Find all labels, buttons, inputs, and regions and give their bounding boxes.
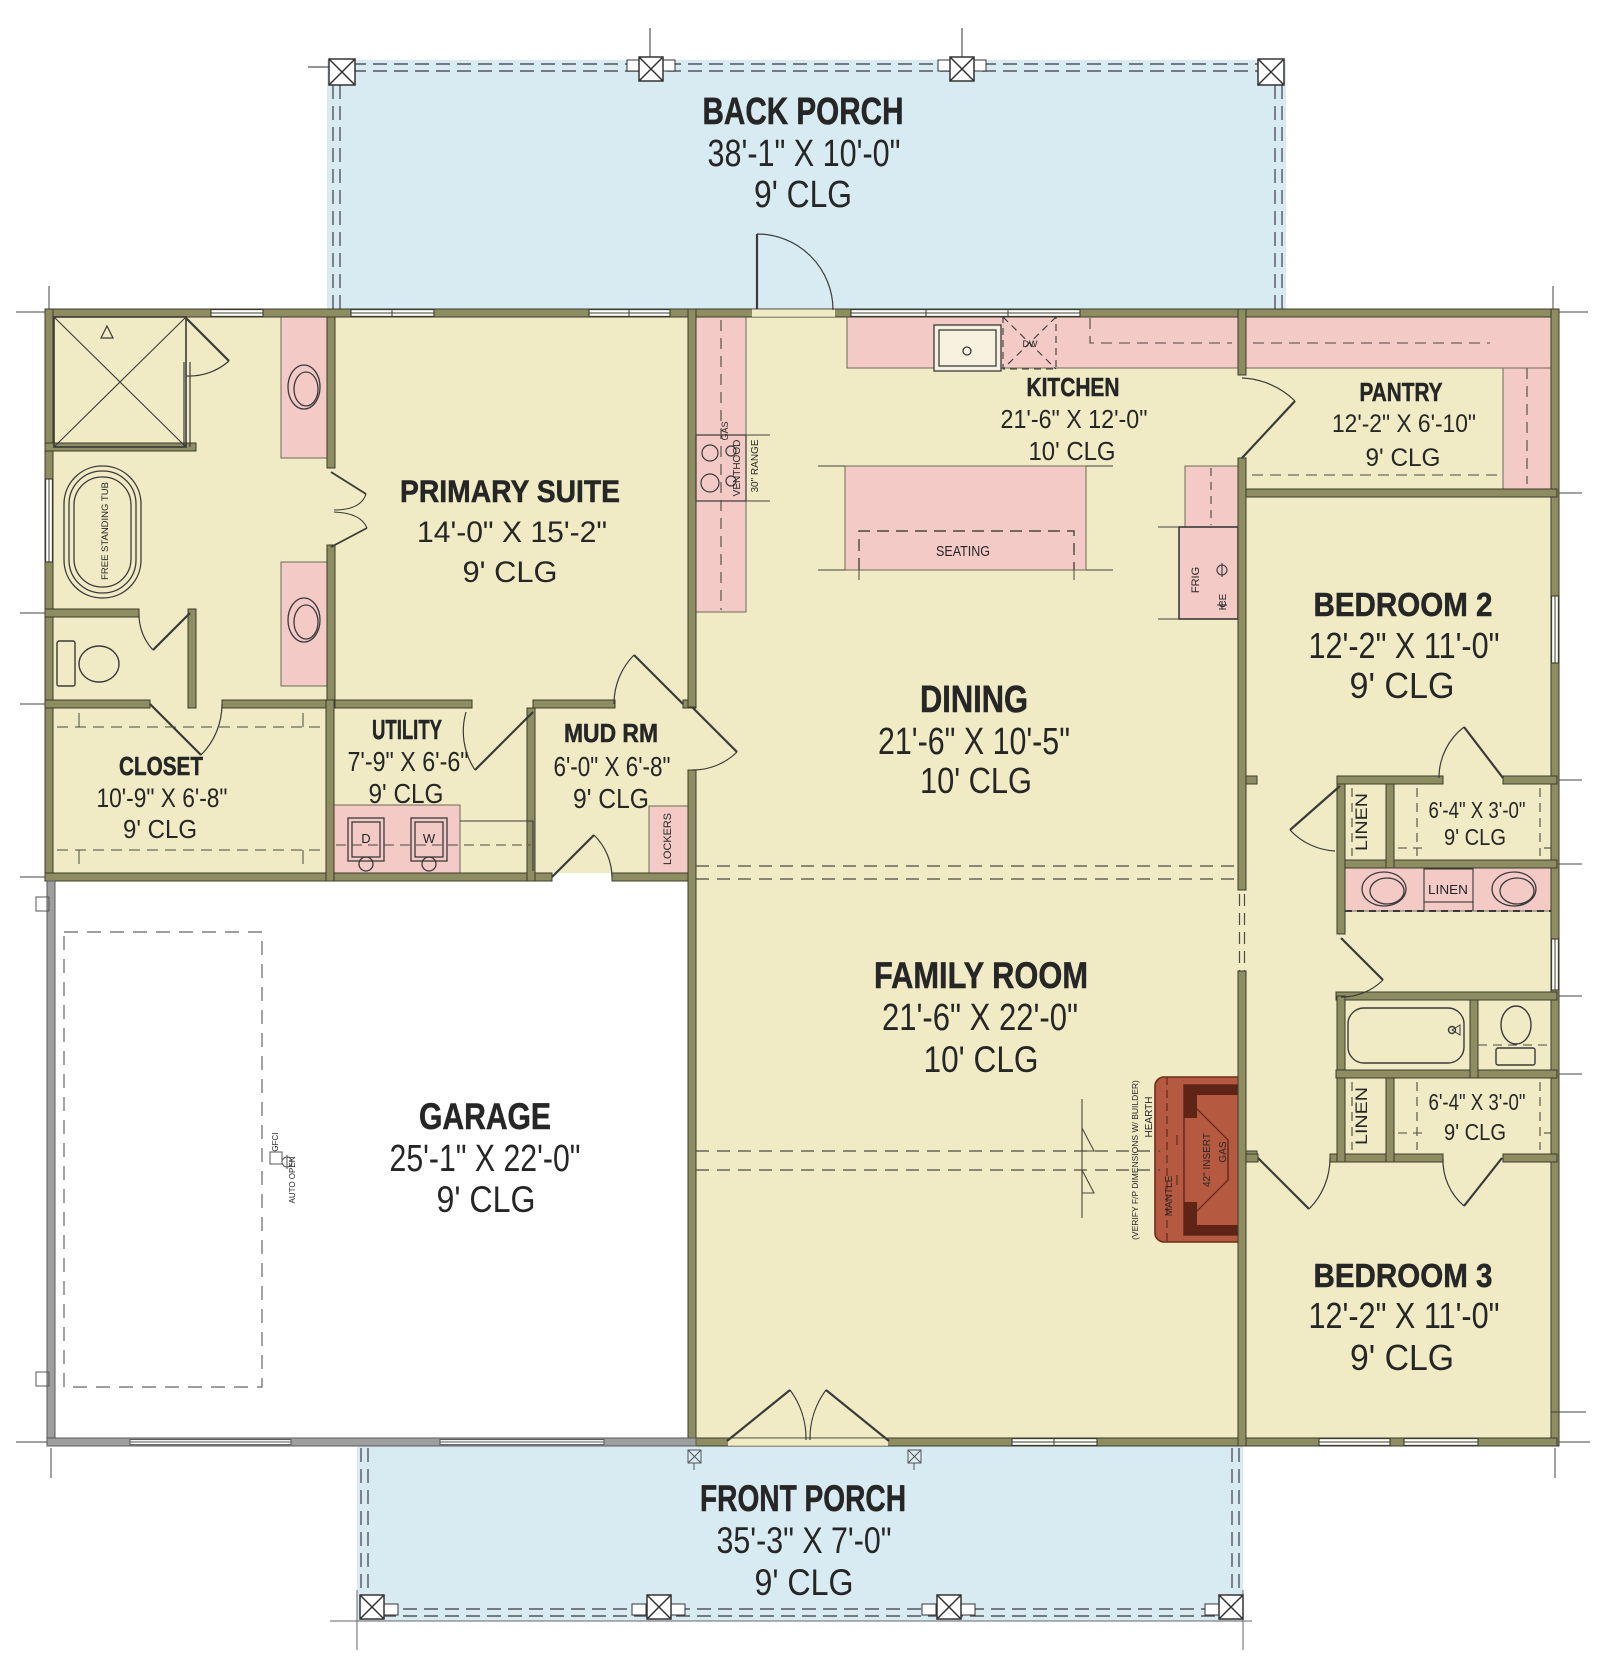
svg-text:MANTLE: MANTLE [1164, 1175, 1175, 1216]
svg-text:LOCKERS: LOCKERS [662, 813, 674, 865]
svg-text:9' CLG: 9' CLG [463, 556, 558, 589]
svg-text:10' CLG: 10' CLG [920, 760, 1032, 801]
svg-text:MUD RM: MUD RM [564, 718, 658, 748]
svg-text:FREE STANDING TUB: FREE STANDING TUB [100, 482, 111, 580]
svg-text:9' CLG: 9' CLG [1366, 444, 1441, 472]
svg-text:PANTRY: PANTRY [1360, 377, 1443, 407]
svg-text:CLOSET: CLOSET [119, 751, 203, 781]
svg-text:DINING: DINING [920, 679, 1028, 721]
svg-text:W: W [423, 831, 436, 846]
svg-text:12'-2" X 11'-0": 12'-2" X 11'-0" [1309, 625, 1500, 666]
svg-text:9' CLG: 9' CLG [1350, 1337, 1454, 1378]
svg-text:BEDROOM 3: BEDROOM 3 [1314, 1257, 1493, 1294]
svg-text:9' CLG: 9' CLG [1350, 665, 1455, 706]
svg-text:HEARTH: HEARTH [1144, 1097, 1155, 1138]
svg-text:PRIMARY SUITE: PRIMARY SUITE [400, 473, 620, 509]
svg-text:FRONT PORCH: FRONT PORCH [700, 1478, 906, 1519]
svg-text:GAS: GAS [1218, 1141, 1229, 1162]
svg-text:6'-4" X 3'-0": 6'-4" X 3'-0" [1429, 1089, 1526, 1115]
svg-text:AUTO OPEN: AUTO OPEN [288, 1156, 297, 1203]
svg-text:12'-2" X 6'-10": 12'-2" X 6'-10" [1332, 410, 1476, 438]
svg-text:6'-0" X 6'-8": 6'-0" X 6'-8" [554, 751, 671, 782]
svg-text:9' CLG: 9' CLG [755, 1562, 854, 1603]
svg-text:10'-9" X 6'-8": 10'-9" X 6'-8" [97, 783, 228, 813]
svg-text:LINEN: LINEN [1428, 882, 1468, 897]
svg-text:9' CLG: 9' CLG [1444, 824, 1506, 850]
svg-text:FAMILY ROOM: FAMILY ROOM [874, 955, 1088, 996]
svg-text:9' CLG: 9' CLG [437, 1179, 536, 1220]
svg-text:9' CLG: 9' CLG [1444, 1119, 1506, 1145]
svg-text:10' CLG: 10' CLG [1029, 436, 1116, 466]
svg-text:GARAGE: GARAGE [419, 1096, 551, 1137]
svg-text:30" RANGE: 30" RANGE [750, 439, 761, 492]
svg-text:LINEN: LINEN [1352, 793, 1371, 851]
svg-text:35'-3" X 7'-0": 35'-3" X 7'-0" [717, 1520, 892, 1561]
svg-text:7'-9" X 6'-6": 7'-9" X 6'-6" [348, 746, 469, 777]
svg-text:9' CLG: 9' CLG [123, 814, 197, 844]
svg-text:9' CLG: 9' CLG [573, 783, 649, 814]
svg-text:25'-1" X 22'-0": 25'-1" X 22'-0" [390, 1138, 581, 1180]
svg-text:42" INSERT: 42" INSERT [1202, 1133, 1213, 1187]
svg-text:38'-1" X 10'-0": 38'-1" X 10'-0" [708, 133, 901, 175]
svg-text:UTILITY: UTILITY [372, 714, 442, 745]
svg-text:9' CLG: 9' CLG [369, 778, 444, 809]
svg-text:BACK PORCH: BACK PORCH [703, 91, 904, 133]
svg-text:6'-4" X 3'-0": 6'-4" X 3'-0" [1429, 797, 1526, 823]
svg-text:BEDROOM 2: BEDROOM 2 [1314, 586, 1493, 623]
svg-text:VENTHOOD: VENTHOOD [732, 440, 743, 497]
svg-text:21'-6" X 12'-0": 21'-6" X 12'-0" [1001, 404, 1148, 434]
svg-text:GFCI: GFCI [271, 1132, 280, 1151]
svg-text:(VERIFY F/P DIMENSIONS W/ BUIL: (VERIFY F/P DIMENSIONS W/ BUILDER) [1130, 1080, 1140, 1240]
svg-text:SEATING: SEATING [936, 543, 990, 560]
svg-text:12'-2" X 11'-0": 12'-2" X 11'-0" [1309, 1295, 1500, 1336]
svg-text:21'-6" X 22'-0": 21'-6" X 22'-0" [882, 997, 1078, 1039]
svg-text:14'-0" X 15'-2": 14'-0" X 15'-2" [417, 516, 607, 549]
svg-text:9' CLG: 9' CLG [754, 174, 852, 216]
svg-text:KITCHEN: KITCHEN [1027, 372, 1120, 402]
svg-text:LINEN: LINEN [1352, 1087, 1371, 1145]
svg-text:D: D [361, 831, 370, 846]
svg-text:21'-6" X 10'-5": 21'-6" X 10'-5" [878, 721, 1070, 763]
svg-text:ICE: ICE [1218, 593, 1229, 610]
svg-text:FRIG: FRIG [1190, 567, 1202, 593]
svg-text:10' CLG: 10' CLG [924, 1039, 1039, 1080]
svg-text:GAS: GAS [720, 421, 730, 440]
svg-text:DW: DW [1023, 339, 1038, 349]
